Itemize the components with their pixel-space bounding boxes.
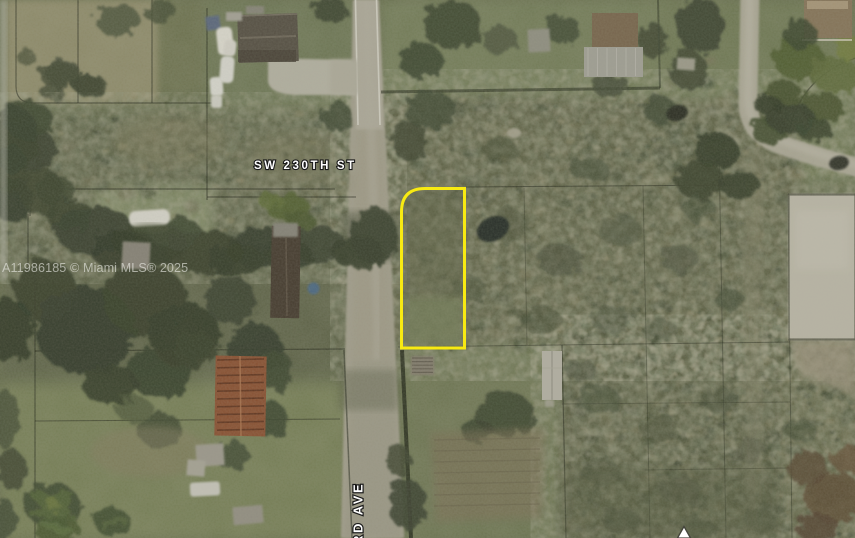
svg-text:SW 230TH ST: SW 230TH ST — [254, 160, 357, 172]
svg-text:A11986185 © Miami MLS® 2025: A11986185 © Miami MLS® 2025 — [2, 261, 188, 275]
svg-text:RD AVE: RD AVE — [351, 482, 366, 538]
